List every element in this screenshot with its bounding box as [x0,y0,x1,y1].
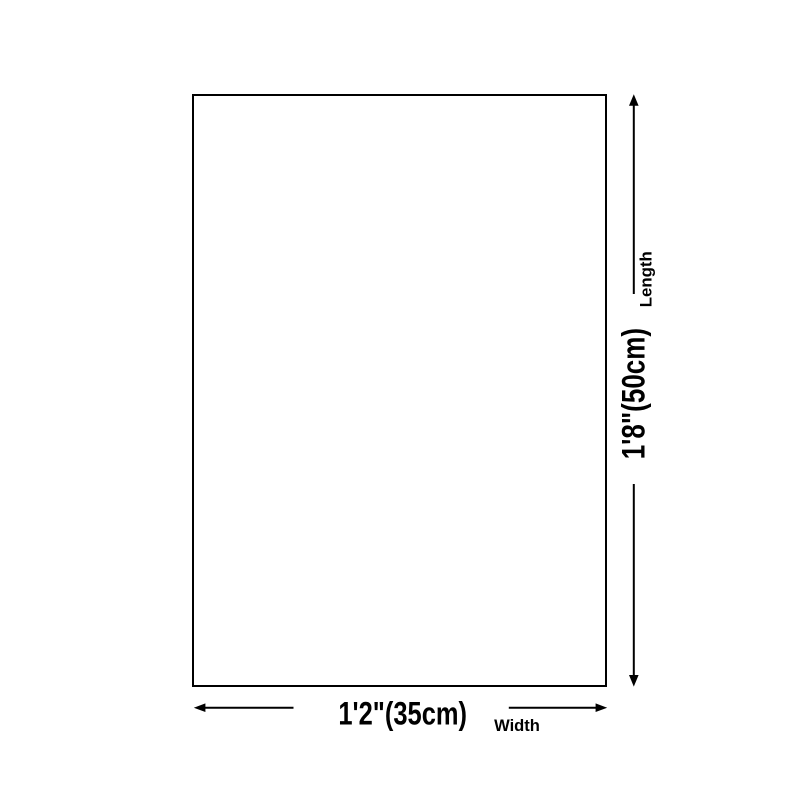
svg-text:1'8"(50cm): 1'8"(50cm) [615,328,651,459]
svg-text:Width: Width [494,717,540,735]
svg-text:Length: Length [638,251,656,307]
svg-text:1'2"(35cm): 1'2"(35cm) [338,696,467,732]
